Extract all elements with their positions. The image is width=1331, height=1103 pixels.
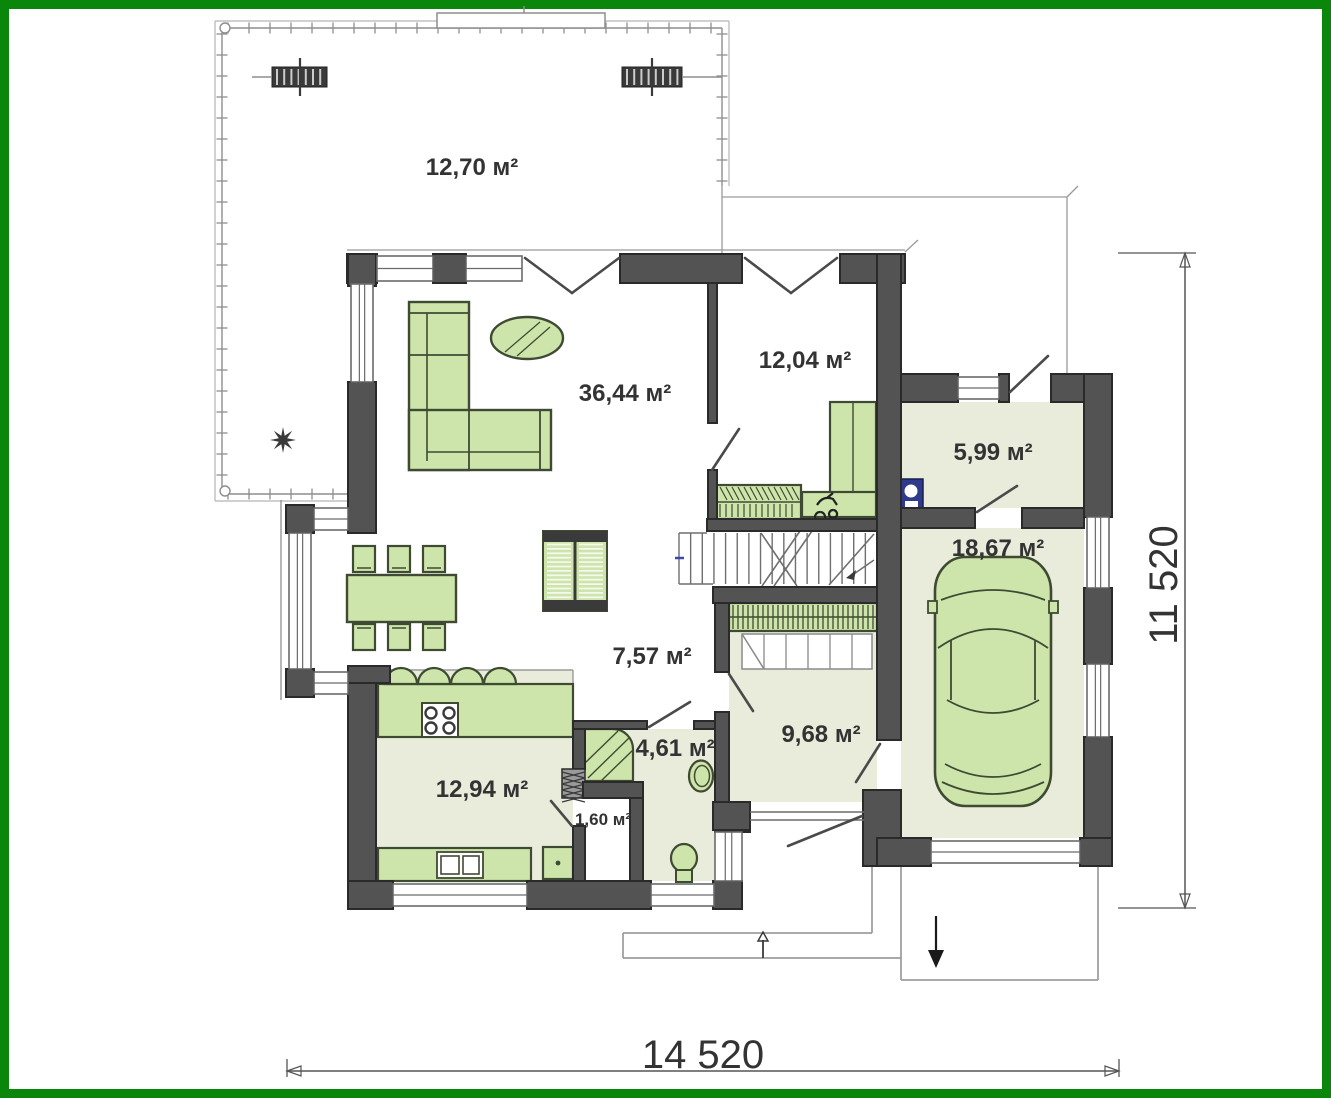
svg-text:18,67 м²: 18,67 м² [952,535,1044,562]
svg-text:12,70 м²: 12,70 м² [426,154,518,181]
svg-text:7,57 м²: 7,57 м² [612,643,691,670]
svg-text:4,61 м²: 4,61 м² [635,735,714,762]
svg-text:12,94 м²: 12,94 м² [436,776,528,803]
svg-text:36,44 м²: 36,44 м² [579,380,671,407]
svg-text:5,99 м²: 5,99 м² [953,439,1032,466]
svg-text:11 520: 11 520 [1142,525,1186,644]
svg-text:9,68 м²: 9,68 м² [781,721,860,748]
svg-text:14 520: 14 520 [642,1033,764,1077]
svg-text:12,04 м²: 12,04 м² [759,347,851,374]
svg-text:1,60 м²: 1,60 м² [575,810,631,829]
